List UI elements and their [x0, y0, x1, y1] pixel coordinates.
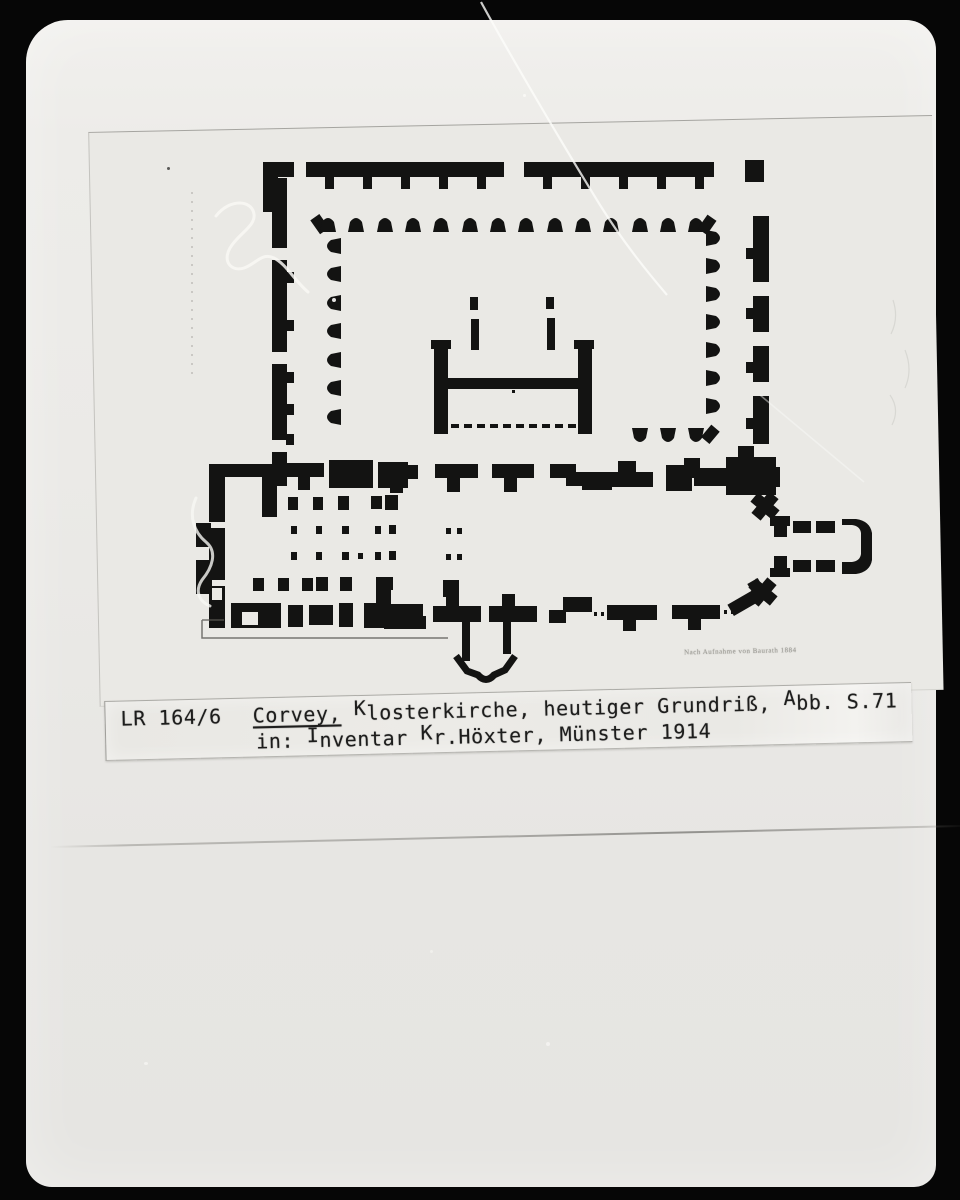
- slide-frame: Nach Aufnahme von Baurath 1884 LR 164/6C…: [0, 0, 960, 1200]
- caption-text: bb. S.71: [796, 688, 898, 714]
- fountain-house: [431, 297, 594, 434]
- nave-south-arcade: [376, 577, 765, 631]
- east-apse: [743, 486, 872, 611]
- dust-speck: [332, 298, 336, 302]
- dark-speck: [167, 167, 170, 170]
- floor-plan-drawing: [191, 148, 891, 693]
- caption-title: Corvey,: [252, 701, 341, 727]
- cloister-colonnade: [310, 214, 720, 444]
- raised-capital: K: [353, 696, 366, 720]
- dust-speck: [546, 1042, 550, 1046]
- nave-north-arcade: [378, 446, 780, 495]
- raised-capital: K: [420, 720, 433, 744]
- south-chapel: [456, 622, 515, 680]
- dust-speck: [144, 1062, 148, 1065]
- dust-speck: [430, 950, 433, 953]
- paper-fold-line: [50, 825, 960, 848]
- raised-capital: I: [306, 723, 319, 747]
- caption-text: in:: [256, 728, 307, 753]
- archive-id: LR 164/6: [120, 704, 222, 730]
- photo-print: Nach Aufnahme von Baurath 1884 LR 164/6C…: [26, 20, 936, 1187]
- dust-speck: [523, 94, 526, 97]
- caption-text: nventar: [319, 726, 421, 752]
- caption-text: r.Höxter, Münster 1914: [433, 719, 712, 750]
- caption-gap: [222, 723, 253, 724]
- raised-capital: A: [783, 686, 796, 710]
